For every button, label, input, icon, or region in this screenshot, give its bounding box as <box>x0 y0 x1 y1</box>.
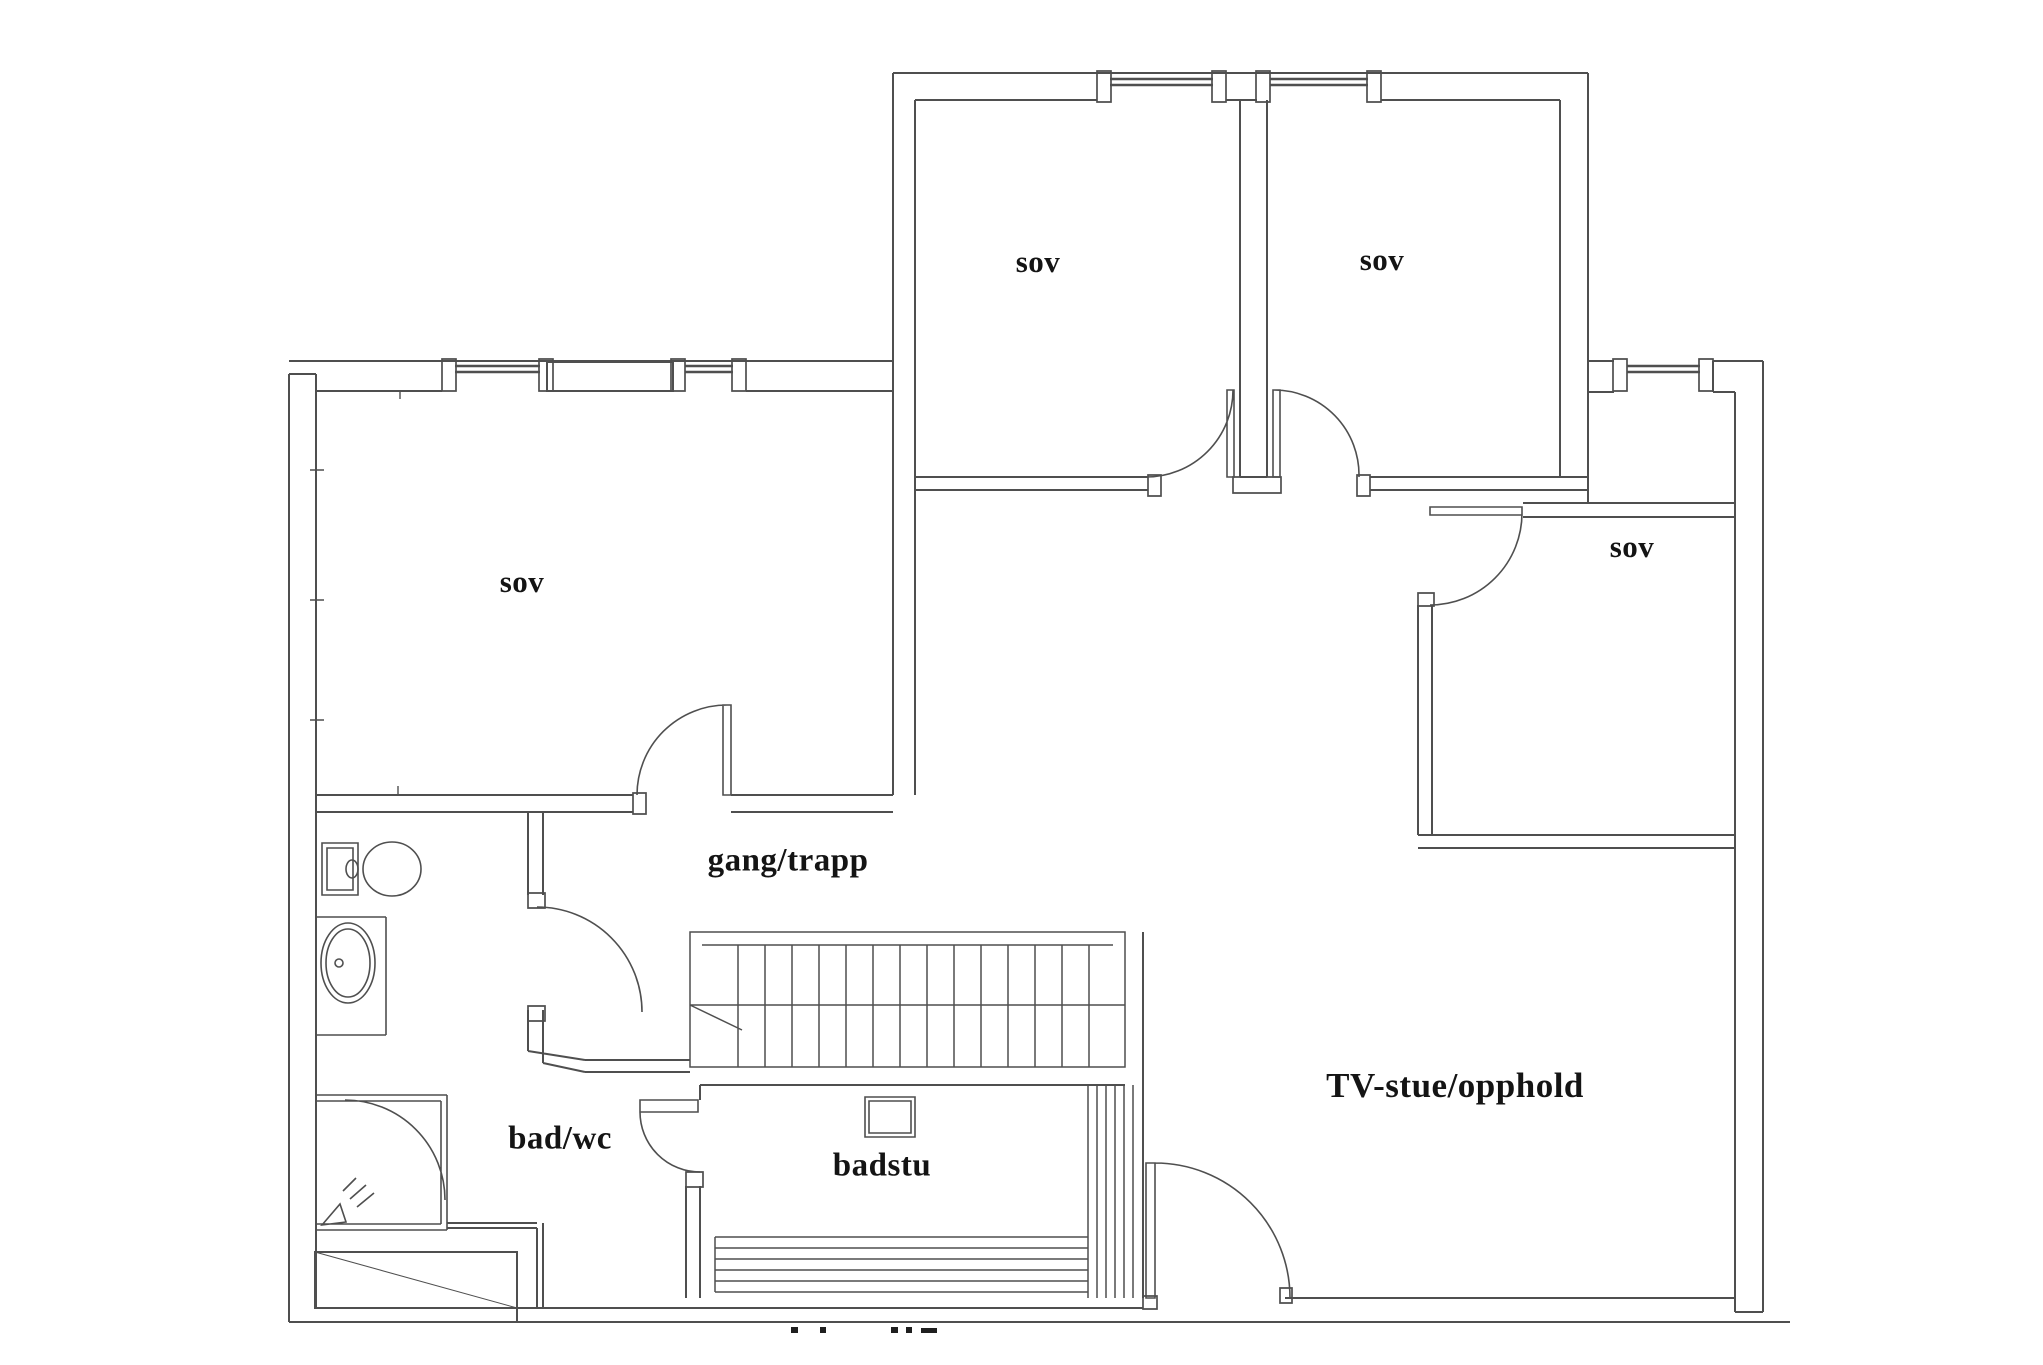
toilet-icon <box>322 843 358 895</box>
door-swing-icon <box>537 390 1522 1298</box>
floor-plan-drawing <box>0 0 2043 1365</box>
sauna-stove-icon <box>865 1097 915 1137</box>
window-door-jambs <box>442 71 1713 1309</box>
room-label-sov-left: sov <box>500 564 545 600</box>
shower-icon <box>316 1095 447 1230</box>
floor-plan-canvas: sov sov sov sov gang/trapp bad/wc badstu… <box>0 0 2043 1365</box>
entry-triangle <box>315 1252 517 1308</box>
wall-tick-marks <box>310 391 400 795</box>
room-label-sov-top-right: sov <box>1360 242 1405 278</box>
sauna-bench-icon <box>715 1085 1133 1298</box>
room-label-badstu: badstu <box>833 1148 931 1185</box>
room-label-tv-stue: TV-stue/opphold <box>1326 1066 1584 1106</box>
room-label-sov-right: sov <box>1610 529 1655 565</box>
entry-triangle-outline <box>315 1252 517 1322</box>
toilet-bowl <box>363 842 421 896</box>
room-label-gang-trapp: gang/trapp <box>708 843 869 880</box>
washbasin-icon <box>321 923 375 1003</box>
washbasin-counter <box>316 917 386 1035</box>
staircase-icon <box>690 932 1125 1067</box>
window-icon <box>455 79 1700 372</box>
room-label-bad-wc: bad/wc <box>508 1121 612 1158</box>
toilet-hinge <box>346 860 358 878</box>
cropped-text-fragments <box>791 1327 937 1333</box>
washbasin-faucet <box>335 959 343 967</box>
washbasin-inner-rim <box>326 929 370 997</box>
room-label-sov-top-middle: sov <box>1016 244 1061 280</box>
